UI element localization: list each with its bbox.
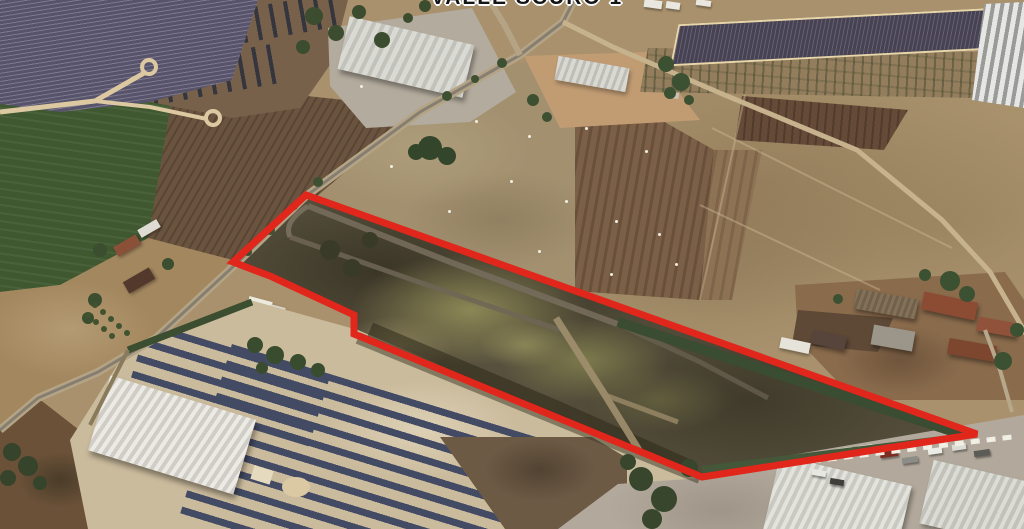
trees-mid: [658, 56, 694, 105]
map-label: VALLE SCURO 1: [0, 0, 1024, 10]
parcel-interior-features: [288, 206, 970, 470]
trees-compound-garden: [247, 337, 325, 377]
farm-track-topleft: [0, 60, 220, 125]
parcel-dark-band: [370, 330, 690, 468]
road-yard-access: [985, 330, 1012, 412]
parcel-boundary: [233, 195, 977, 477]
trees-bottom-left: [0, 443, 47, 490]
satellite-map: VALLE SCURO 1: [0, 0, 1024, 529]
trees-farmhouse: [82, 243, 174, 324]
map-annotations: [0, 0, 1024, 529]
parcel-trees: [320, 232, 378, 277]
tree-clump-hayfield: [408, 136, 456, 165]
